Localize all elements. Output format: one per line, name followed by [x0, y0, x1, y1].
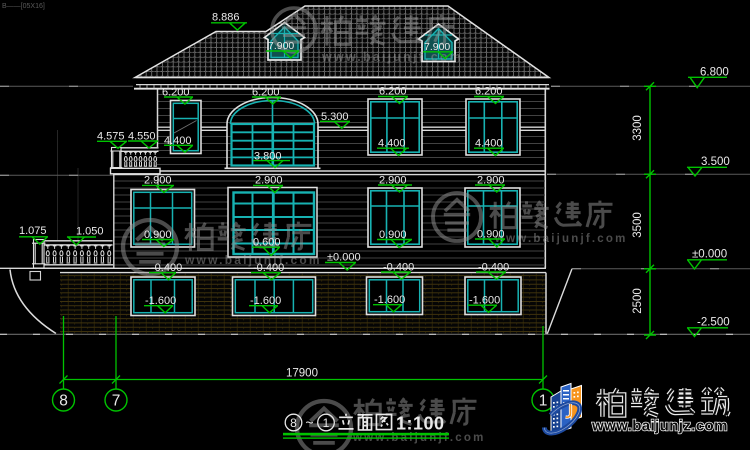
svg-text:3500: 3500	[632, 212, 644, 238]
svg-text:6.200: 6.200	[475, 86, 503, 98]
svg-text:8: 8	[59, 393, 68, 410]
svg-text:6.200: 6.200	[379, 86, 407, 98]
svg-text:www.baijunjz.com: www.baijunjz.com	[591, 418, 728, 435]
svg-text:1: 1	[323, 416, 330, 430]
svg-text:8.886: 8.886	[212, 12, 240, 24]
svg-text:7: 7	[112, 393, 121, 410]
svg-text:17900: 17900	[286, 368, 318, 380]
svg-text:1.075: 1.075	[19, 225, 47, 237]
svg-text:±0.000: ±0.000	[327, 252, 361, 264]
svg-text:1:100: 1:100	[396, 414, 445, 434]
svg-text:1: 1	[539, 393, 548, 410]
svg-text:-2.500: -2.500	[697, 317, 730, 329]
svg-text:www.baijunjf.com: www.baijunjf.com	[494, 233, 628, 245]
svg-text:3300: 3300	[632, 115, 644, 141]
svg-text:2500: 2500	[632, 288, 644, 314]
svg-text:3.500: 3.500	[701, 156, 730, 168]
svg-text:1.050: 1.050	[76, 226, 104, 238]
svg-text:8: 8	[290, 416, 297, 430]
svg-text:±0.000: ±0.000	[692, 249, 727, 261]
svg-text:7.900: 7.900	[268, 40, 294, 52]
svg-text:~: ~	[305, 415, 313, 431]
svg-text:B——[05X16]: B——[05X16]	[2, 3, 45, 10]
